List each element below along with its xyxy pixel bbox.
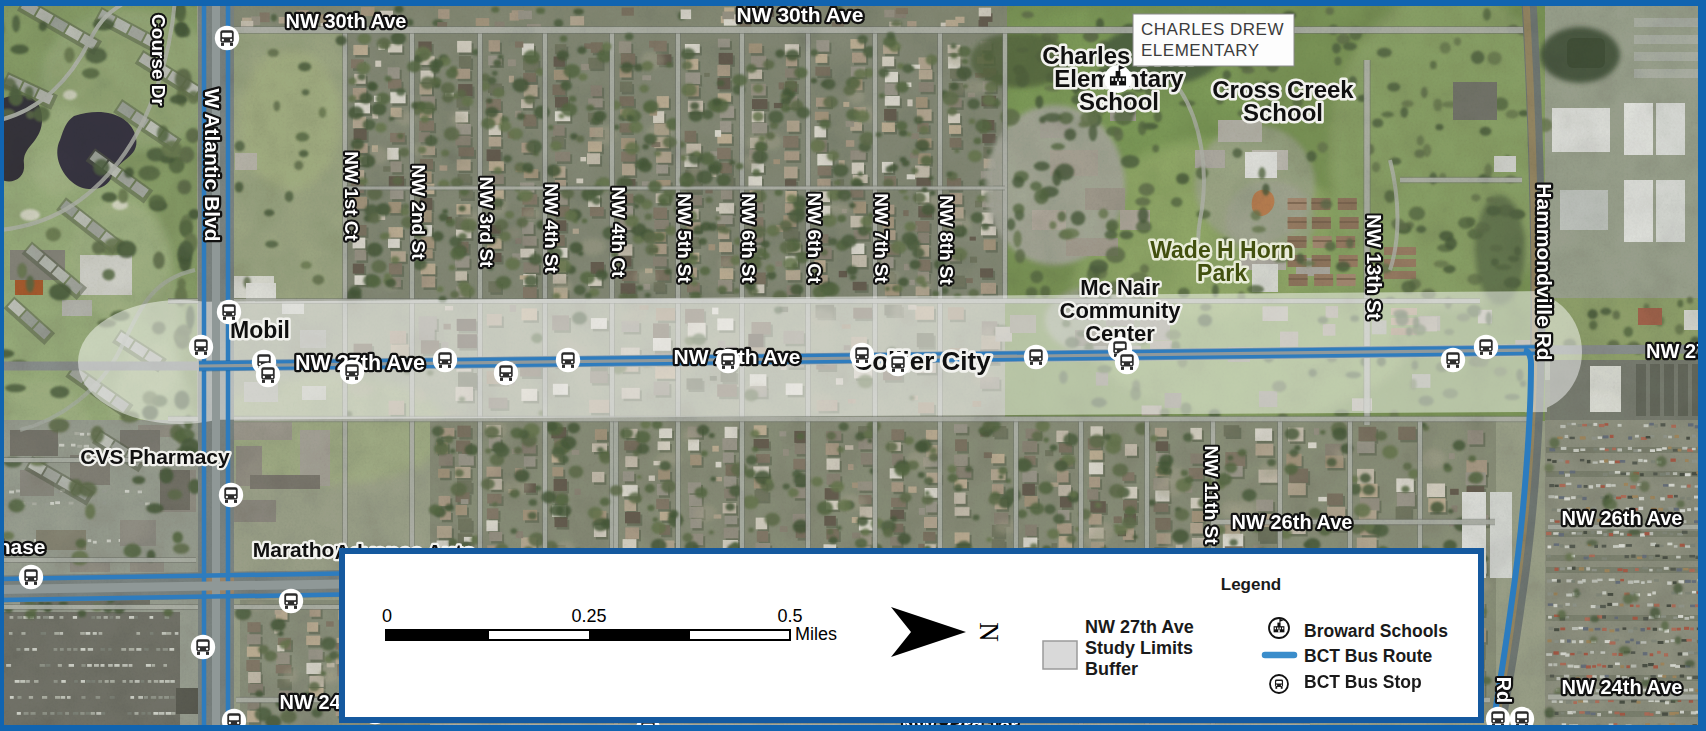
svg-text:NW 4th St: NW 4th St (541, 183, 562, 273)
svg-text:NW 8th St: NW 8th St (936, 195, 957, 285)
svg-text:W Atlantic Blvd: W Atlantic Blvd (201, 88, 224, 241)
svg-text:Buffer: Buffer (1085, 659, 1138, 679)
svg-text:Marathon: Marathon (253, 538, 348, 561)
svg-text:Legend: Legend (1221, 575, 1281, 594)
svg-text:Rd: Rd (1493, 677, 1515, 704)
svg-text:NW 27t: NW 27t (1646, 340, 1706, 362)
svg-text:Mobil: Mobil (230, 317, 290, 343)
svg-text:NW 27th Ave: NW 27th Ave (1085, 617, 1194, 637)
svg-text:School: School (1243, 99, 1323, 126)
svg-text:NW 3rd St: NW 3rd St (476, 177, 497, 268)
svg-text:Chase: Chase (0, 535, 46, 558)
svg-text:NW 11th St: NW 11th St (1201, 445, 1222, 545)
svg-text:Mc Nair: Mc Nair (1080, 275, 1160, 300)
svg-text:NW 4th Ct: NW 4th Ct (608, 187, 629, 278)
svg-text:ELEMENTARY: ELEMENTARY (1141, 41, 1260, 60)
svg-text:NW 30th Ave: NW 30th Ave (286, 10, 407, 32)
svg-text:0.25: 0.25 (571, 606, 606, 626)
svg-text:NW 7th St: NW 7th St (871, 193, 892, 283)
svg-text:Miles: Miles (795, 624, 837, 644)
svg-text:0: 0 (382, 606, 392, 626)
svg-text:NW 5th St: NW 5th St (674, 193, 695, 283)
svg-text:Course Dr: Course Dr (148, 14, 169, 106)
svg-text:NW 6th St: NW 6th St (738, 193, 759, 283)
svg-text:N: N (974, 622, 1004, 642)
svg-text:NW 26th Ave: NW 26th Ave (1562, 507, 1683, 529)
svg-text:NW 13th St: NW 13th St (1363, 214, 1385, 320)
svg-text:Community: Community (1060, 298, 1182, 323)
svg-text:NW 30th Ave: NW 30th Ave (737, 3, 864, 26)
svg-text:CVS Pharmacy: CVS Pharmacy (80, 445, 230, 468)
svg-text:NW 26th Ave: NW 26th Ave (1232, 511, 1353, 533)
svg-text:NW 1st Ct: NW 1st Ct (341, 151, 362, 241)
svg-text:NW 24th Ave: NW 24th Ave (1562, 676, 1683, 698)
svg-text:NW 6th Ct: NW 6th Ct (804, 193, 825, 284)
svg-text:0.5: 0.5 (777, 606, 802, 626)
svg-text:BCT Bus Stop: BCT Bus Stop (1304, 672, 1422, 692)
svg-text:Park: Park (1197, 260, 1247, 286)
svg-text:Study Limits: Study Limits (1085, 638, 1193, 658)
svg-text:CHARLES DREW: CHARLES DREW (1141, 20, 1284, 39)
svg-text:Collier City: Collier City (853, 346, 991, 376)
svg-text:Hammondville Rd: Hammondville Rd (1533, 183, 1556, 360)
svg-text:BCT Bus Route: BCT Bus Route (1304, 646, 1433, 666)
svg-text:Broward Schools: Broward Schools (1304, 621, 1448, 641)
svg-text:NW 2nd St: NW 2nd St (408, 165, 429, 261)
